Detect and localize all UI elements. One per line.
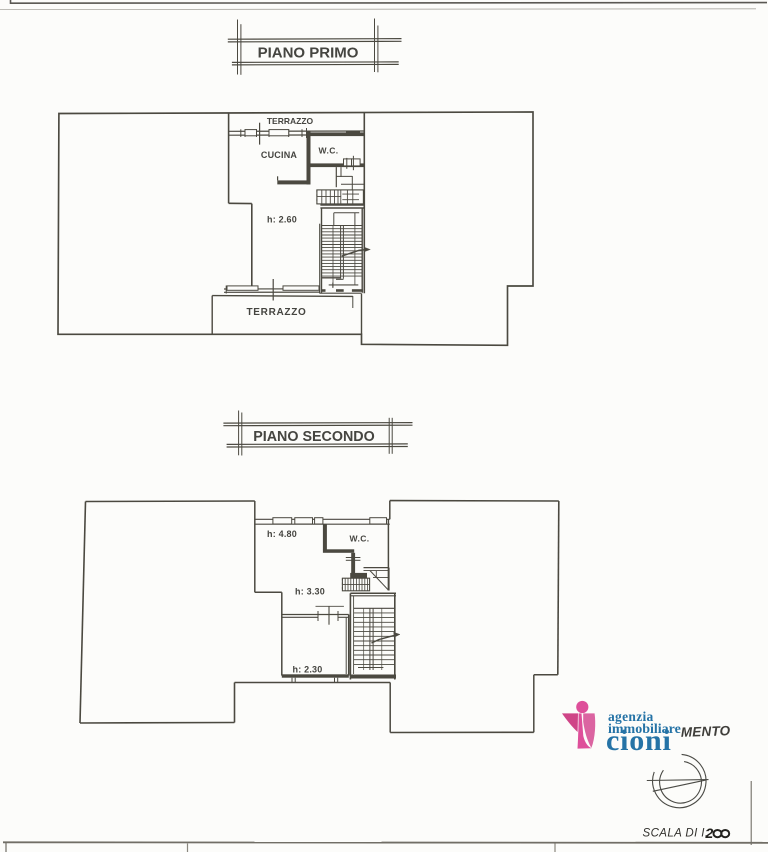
svg-text:TERRAZZO: TERRAZZO <box>246 307 306 318</box>
svg-text:PIANO SECONDO: PIANO SECONDO <box>253 429 375 445</box>
svg-text:h: 2.30: h: 2.30 <box>293 664 323 674</box>
svg-text:h: 3.30: h: 3.30 <box>295 586 325 596</box>
svg-text:cioni: cioni <box>606 724 672 757</box>
svg-text:TERRAZZO: TERRAZZO <box>267 116 314 126</box>
svg-text:SCALA DI I:: SCALA DI I: <box>643 827 709 839</box>
svg-text:PIANO PRIMO: PIANO PRIMO <box>258 44 359 61</box>
svg-text:W.C.: W.C. <box>318 146 338 156</box>
svg-text:2: 2 <box>705 825 714 841</box>
svg-text:W.C.: W.C. <box>349 533 369 543</box>
svg-text:h: 2.60: h: 2.60 <box>267 215 297 225</box>
svg-text:CUCINA: CUCINA <box>261 150 297 160</box>
svg-text:h: 4.80: h: 4.80 <box>267 529 297 539</box>
svg-text:MENTO: MENTO <box>681 723 731 740</box>
